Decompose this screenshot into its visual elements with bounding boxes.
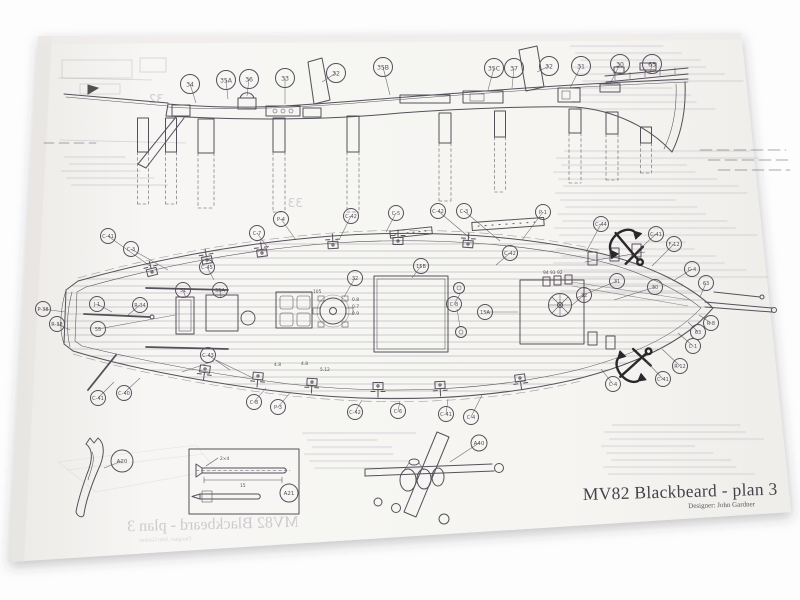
callout-label: 55A — [215, 288, 225, 294]
callout-label: C-41 — [440, 412, 452, 418]
showthrough-text-line — [564, 150, 750, 152]
showthrough-text-line — [64, 156, 126, 158]
dimension-text: 15 — [240, 483, 246, 489]
callout-label: J-1 — [93, 302, 100, 308]
callout-label: C-1 — [689, 344, 697, 350]
callout-label: C-44 — [595, 222, 607, 228]
callout-label: C-7 — [253, 231, 261, 237]
callout-label: P-4 — [277, 217, 285, 223]
showthrough-text-line — [563, 185, 739, 187]
capstan — [549, 294, 572, 317]
callout-label: C-4 — [609, 382, 617, 388]
showthrough-text-line — [558, 178, 717, 180]
dimension-text: 5.12 — [320, 367, 330, 373]
showthrough-text-line — [565, 206, 697, 208]
callout-label: 32 — [581, 293, 587, 299]
showthrough-text-line — [603, 466, 737, 468]
callout-label: P-1 — [539, 210, 547, 216]
dimension-text: 2×4 — [220, 456, 229, 462]
callout-label: 55 — [95, 327, 101, 333]
showthrough-text-line — [609, 438, 764, 440]
showthrough-text-line — [66, 177, 154, 179]
callout-label: 30 — [616, 62, 624, 69]
dimension-text: 4.8 — [301, 361, 308, 367]
showthrough-text-line — [557, 213, 706, 215]
callout-label: C-41 — [92, 396, 104, 402]
callout-label: 31 — [614, 279, 620, 285]
showthrough-text-line — [611, 459, 731, 461]
plan-sheet-svg: 3332 MV82 Blackbeard - plan 3 Designer: … — [0, 0, 800, 600]
showthrough-text-line — [561, 164, 687, 166]
showthrough-text-line — [612, 424, 741, 426]
dimension-text: 0.7 — [352, 304, 359, 310]
callout-label: 30 — [652, 285, 658, 291]
showthrough-text-line — [69, 163, 140, 165]
showthrough-text-line — [554, 227, 736, 229]
dimension-text: 0.9 — [352, 311, 359, 317]
callout-label: R-34 — [134, 303, 145, 309]
callout-label: A40 — [474, 441, 485, 447]
dimension-text: 94 93 92 — [543, 270, 563, 276]
callout-label: P-38 — [37, 307, 48, 313]
callout-label: 63 — [703, 281, 709, 287]
callout-label: 36 — [245, 77, 253, 84]
callout-label: 32 — [332, 71, 340, 78]
dimension-text: 4.8 — [274, 362, 281, 368]
callout-label: 63 — [695, 330, 701, 336]
showthrough-text-line — [302, 432, 416, 434]
callout-label: 15B — [416, 264, 426, 270]
showthrough-text-line — [608, 473, 755, 475]
callout-label: R-12 — [674, 364, 685, 370]
showthrough-text-line — [579, 94, 691, 96]
showthrough-text-line — [309, 460, 408, 462]
showthrough-text-line — [601, 445, 695, 447]
callout-label: C-40 — [118, 391, 130, 397]
callout-label: C-42 — [349, 410, 361, 416]
callout-label: C-4 — [688, 267, 696, 273]
callout-label: C-42 — [504, 251, 516, 257]
dimension-text: 0.8 — [352, 297, 359, 303]
callout-label: C-45 — [201, 265, 213, 271]
callout-label: A21 — [284, 491, 295, 497]
callout-label: F-12 — [668, 242, 679, 248]
showthrough-number: 32 — [149, 92, 164, 106]
showthrough-text-line — [606, 452, 713, 454]
callout-label: C-4 — [467, 415, 475, 421]
callout-label: P-3 — [274, 405, 282, 411]
callout-label: C-8 — [250, 400, 258, 406]
showthrough-text-line — [553, 171, 696, 173]
photo-of-plan-sheet: 3332 MV82 Blackbeard - plan 3 Designer: … — [0, 0, 800, 600]
showthrough-text-line — [580, 59, 701, 61]
callout-label: 63 — [648, 62, 656, 69]
showthrough-text-line — [71, 184, 168, 186]
showthrough-text-line — [304, 453, 394, 455]
dimension-text: 105 — [313, 289, 322, 295]
callout-label: R-38 — [51, 322, 62, 328]
callout-label: C-43 — [202, 353, 214, 359]
callout-label: C-42 — [345, 214, 357, 220]
callout-label: C-5 — [392, 211, 400, 217]
showthrough-text-line — [604, 431, 746, 433]
callout-label: C-8 — [450, 302, 458, 308]
callout-label: 34 — [186, 82, 194, 89]
callout-label: C-3 — [460, 209, 468, 215]
callout-label: 32 — [352, 276, 358, 282]
callout-label: R-8 — [707, 321, 715, 327]
showthrough-text-line — [570, 45, 664, 47]
showthrough-text-line — [307, 439, 378, 441]
showthrough-number: 33 — [288, 196, 303, 210]
showthrough-text-line — [556, 157, 759, 159]
callout-label: 35A — [220, 78, 233, 85]
callout-label: A20 — [117, 459, 128, 465]
callout-label: C-41 — [650, 232, 662, 238]
callout-label: 32 — [545, 64, 553, 71]
callout-label: C-3 — [127, 247, 135, 253]
showthrough-text-line — [575, 52, 682, 54]
callout-label: C-41 — [657, 377, 669, 383]
callout-label: C-42 — [432, 209, 444, 215]
callout-label: 31 — [577, 64, 585, 71]
callout-label: 15A — [480, 310, 490, 316]
showthrough-text-line — [312, 446, 392, 448]
callout-label: 37 — [510, 66, 518, 73]
showthrough-text-line — [560, 199, 676, 201]
showthrough-text-line — [574, 87, 673, 89]
callout-label: C-6 — [394, 409, 402, 415]
showthrough-text-line — [555, 192, 748, 194]
callout-label: 35B — [377, 65, 389, 72]
callout-label: 35C — [488, 66, 500, 73]
callout-label: C-41 — [102, 234, 114, 240]
showthrough-text-line — [562, 220, 728, 222]
showthrough-text-line — [61, 170, 141, 172]
callout-label: 33 — [281, 76, 289, 83]
callout-label: 31 — [180, 288, 186, 294]
showthrough-text-line — [571, 101, 697, 103]
